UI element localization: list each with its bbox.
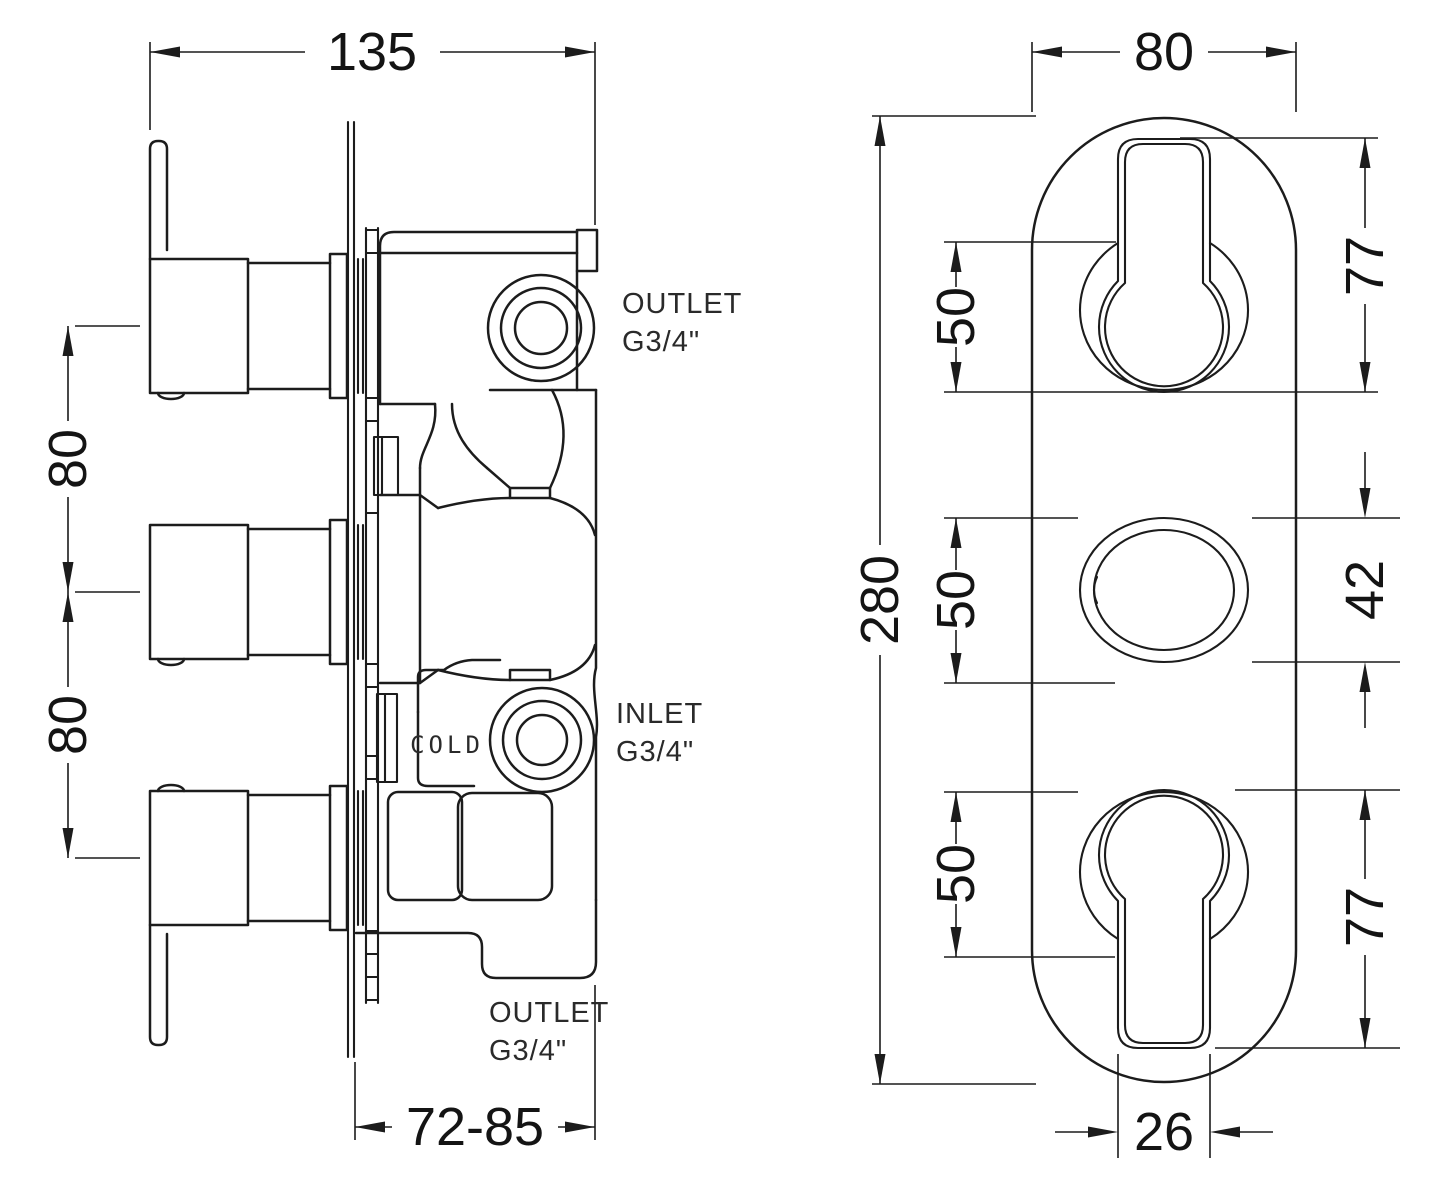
mounting-rail <box>358 228 398 1003</box>
outlet-bottom-label-line1: OUTLET <box>489 997 609 1029</box>
dim-recess-top: 50 <box>926 242 1378 392</box>
dim-80-lower-label: 80 <box>38 695 98 755</box>
cold-marking: COLD <box>410 731 484 759</box>
dim-77-top-label: 77 <box>1335 236 1395 296</box>
port-labels: OUTLET G3/4" INLET G3/4" OUTLET G3/4" CO… <box>410 288 742 1067</box>
side-elevation-view: 135 80 80 72-85 OUTLET G3/4" INLET G3/4"… <box>38 22 742 1157</box>
inlet-port <box>490 688 594 792</box>
keyhole-cutout-bottom <box>1099 790 1229 1048</box>
keyhole-cutout-top <box>1099 139 1229 392</box>
technical-drawing-page: 135 80 80 72-85 OUTLET G3/4" INLET G3/4"… <box>0 0 1445 1190</box>
body-tab <box>577 230 597 271</box>
dim-77-bot-label: 77 <box>1335 887 1395 947</box>
outlet-bottom-label-line2: G3/4" <box>489 1035 567 1067</box>
valve-body-top <box>380 230 597 488</box>
body-block-right <box>458 793 552 900</box>
inlet-label-line1: INLET <box>616 698 703 730</box>
dim-80-plate-label: 80 <box>1134 22 1194 82</box>
body-block-left <box>388 792 462 900</box>
outlet-top-label-line2: G3/4" <box>622 326 700 358</box>
recess-oval-middle <box>1080 518 1248 662</box>
dim-keyhole-top: 77 <box>1180 138 1395 392</box>
dim-26-label: 26 <box>1134 1102 1194 1162</box>
dim-80-upper-label: 80 <box>38 429 98 489</box>
outlet-top-label-line1: OUTLET <box>622 288 742 320</box>
dim-overall-width: 135 <box>150 22 595 225</box>
valve-body-bottom <box>356 660 596 978</box>
dim-stem-width: 26 <box>1055 1054 1273 1162</box>
faceplate-front-view: 80 280 50 50 <box>850 22 1400 1162</box>
dim-handle-spacing: 80 80 <box>38 326 140 858</box>
handle-middle-thermostat <box>150 520 347 665</box>
handle-bottom-lever <box>150 785 347 1045</box>
escutcheon-plate-edge <box>348 122 354 1057</box>
dim-recess-bottom: 50 <box>926 792 1115 957</box>
inlet-label-line2: G3/4" <box>616 736 694 768</box>
dim-135-label: 135 <box>327 22 417 82</box>
dim-280-label: 280 <box>850 555 910 645</box>
dim-50-mid-label: 50 <box>926 570 986 630</box>
shower-valve-dimension-drawing: 135 80 80 72-85 OUTLET G3/4" INLET G3/4"… <box>0 0 1445 1190</box>
valve-body-cartridge <box>380 390 597 900</box>
dim-50-bot-label: 50 <box>926 844 986 904</box>
dim-recess-middle: 50 <box>926 518 1115 683</box>
faceplate-outline <box>1032 118 1296 1082</box>
dim-plate-width: 80 <box>1032 22 1296 112</box>
dim-keyhole-bottom: 77 <box>1215 790 1400 1048</box>
dim-72-85-label: 72-85 <box>406 1097 544 1157</box>
dim-42-label: 42 <box>1335 560 1395 620</box>
dim-oval-middle: 42 <box>1252 452 1400 728</box>
handle-top-lever <box>150 141 347 399</box>
ring-notch <box>1094 577 1097 603</box>
dim-50-top-label: 50 <box>926 287 986 347</box>
